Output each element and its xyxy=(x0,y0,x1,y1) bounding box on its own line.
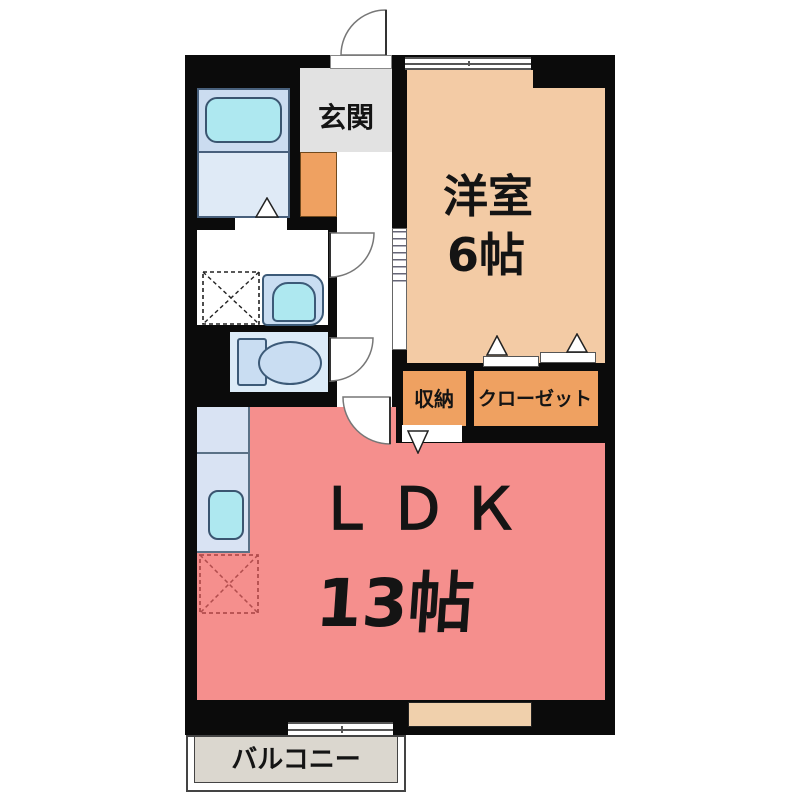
closet-door-triangle-icon xyxy=(566,333,588,353)
window-tick xyxy=(468,61,470,67)
washroom-door-arc-icon xyxy=(329,232,377,278)
closet-label: クローゼット xyxy=(468,389,602,410)
bathtub-icon xyxy=(205,97,282,143)
shoe-cabinet xyxy=(300,152,337,217)
wall-inset-panel xyxy=(408,702,532,727)
sliding-door-track xyxy=(393,231,406,287)
entrance-threshold xyxy=(330,55,392,69)
ldk-size: 13帖 xyxy=(227,568,562,641)
storage-label: 収納 xyxy=(396,388,472,410)
wash-basin-bowl xyxy=(272,282,316,322)
genkan-label: 玄関 xyxy=(300,103,392,134)
closet-door-panel-left xyxy=(483,356,539,367)
western-room-size: 6帖 xyxy=(447,230,567,281)
closet-door-triangle-icon xyxy=(486,335,508,356)
window-western-room xyxy=(405,57,531,70)
kitchen-counter-divider xyxy=(197,452,248,454)
toilet-bowl-icon xyxy=(258,341,322,385)
ldk-door-arc-icon xyxy=(340,396,391,446)
western-room-sliding-door xyxy=(392,228,407,350)
entrance-door-arc-icon xyxy=(330,9,388,57)
ldk-label: ＬＤＫ xyxy=(230,478,620,542)
western-room-label: 洋室 xyxy=(443,172,563,222)
toilet-door-arc-icon xyxy=(329,337,377,382)
bathroom-door-triangle-icon xyxy=(255,197,279,218)
window-tick xyxy=(341,726,343,733)
closet-door-panel-right xyxy=(540,352,596,363)
wall-pillar-topright xyxy=(533,55,615,88)
storage-door-triangle-icon xyxy=(407,430,429,454)
wash-basin-icon xyxy=(262,274,324,326)
washing-machine-space-icon xyxy=(202,271,260,325)
floorplan: 玄関 洋室 6帖 収納 クローゼット ＬＤＫ 13帖 バルコニー xyxy=(0,0,800,800)
balcony-label: バルコニー xyxy=(194,746,398,775)
